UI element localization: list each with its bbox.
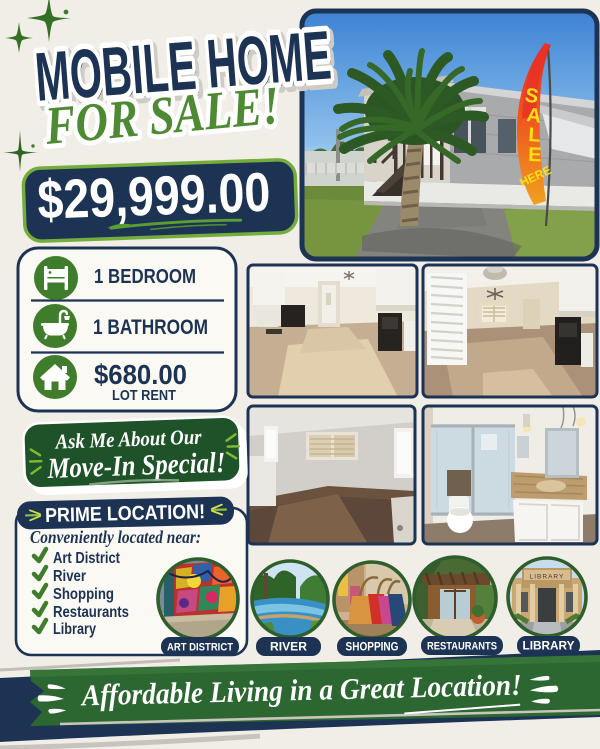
svg-text:LIBRARY: LIBRARY: [523, 641, 575, 653]
svg-text:$680.00: $680.00: [94, 359, 187, 390]
svg-text:RIVER: RIVER: [270, 642, 308, 654]
svg-text:LOT RENT: LOT RENT: [112, 387, 176, 404]
svg-text:Library: Library: [53, 621, 96, 638]
svg-text:SHOPPING: SHOPPING: [346, 642, 399, 654]
svg-text:River: River: [53, 568, 86, 585]
svg-text:1 BATHROOM: 1 BATHROOM: [93, 316, 208, 339]
svg-text:1 BEDROOM: 1 BEDROOM: [94, 266, 196, 288]
svg-text:Conveniently located near:: Conveniently located near:: [30, 527, 201, 547]
svg-text:Move-In Special!: Move-In Special!: [46, 447, 226, 485]
svg-text:Art District: Art District: [53, 550, 121, 567]
svg-text:PRIME LOCATION!: PRIME LOCATION!: [45, 501, 205, 527]
svg-text:ART DISTRICT: ART DISTRICT: [167, 642, 233, 654]
svg-text:Restaurants: Restaurants: [53, 604, 129, 621]
svg-text:E: E: [528, 144, 542, 166]
svg-text:Shopping: Shopping: [53, 586, 114, 603]
svg-text:LIBRARY: LIBRARY: [530, 574, 565, 581]
svg-text:RESTAURANTS: RESTAURANTS: [427, 641, 497, 653]
